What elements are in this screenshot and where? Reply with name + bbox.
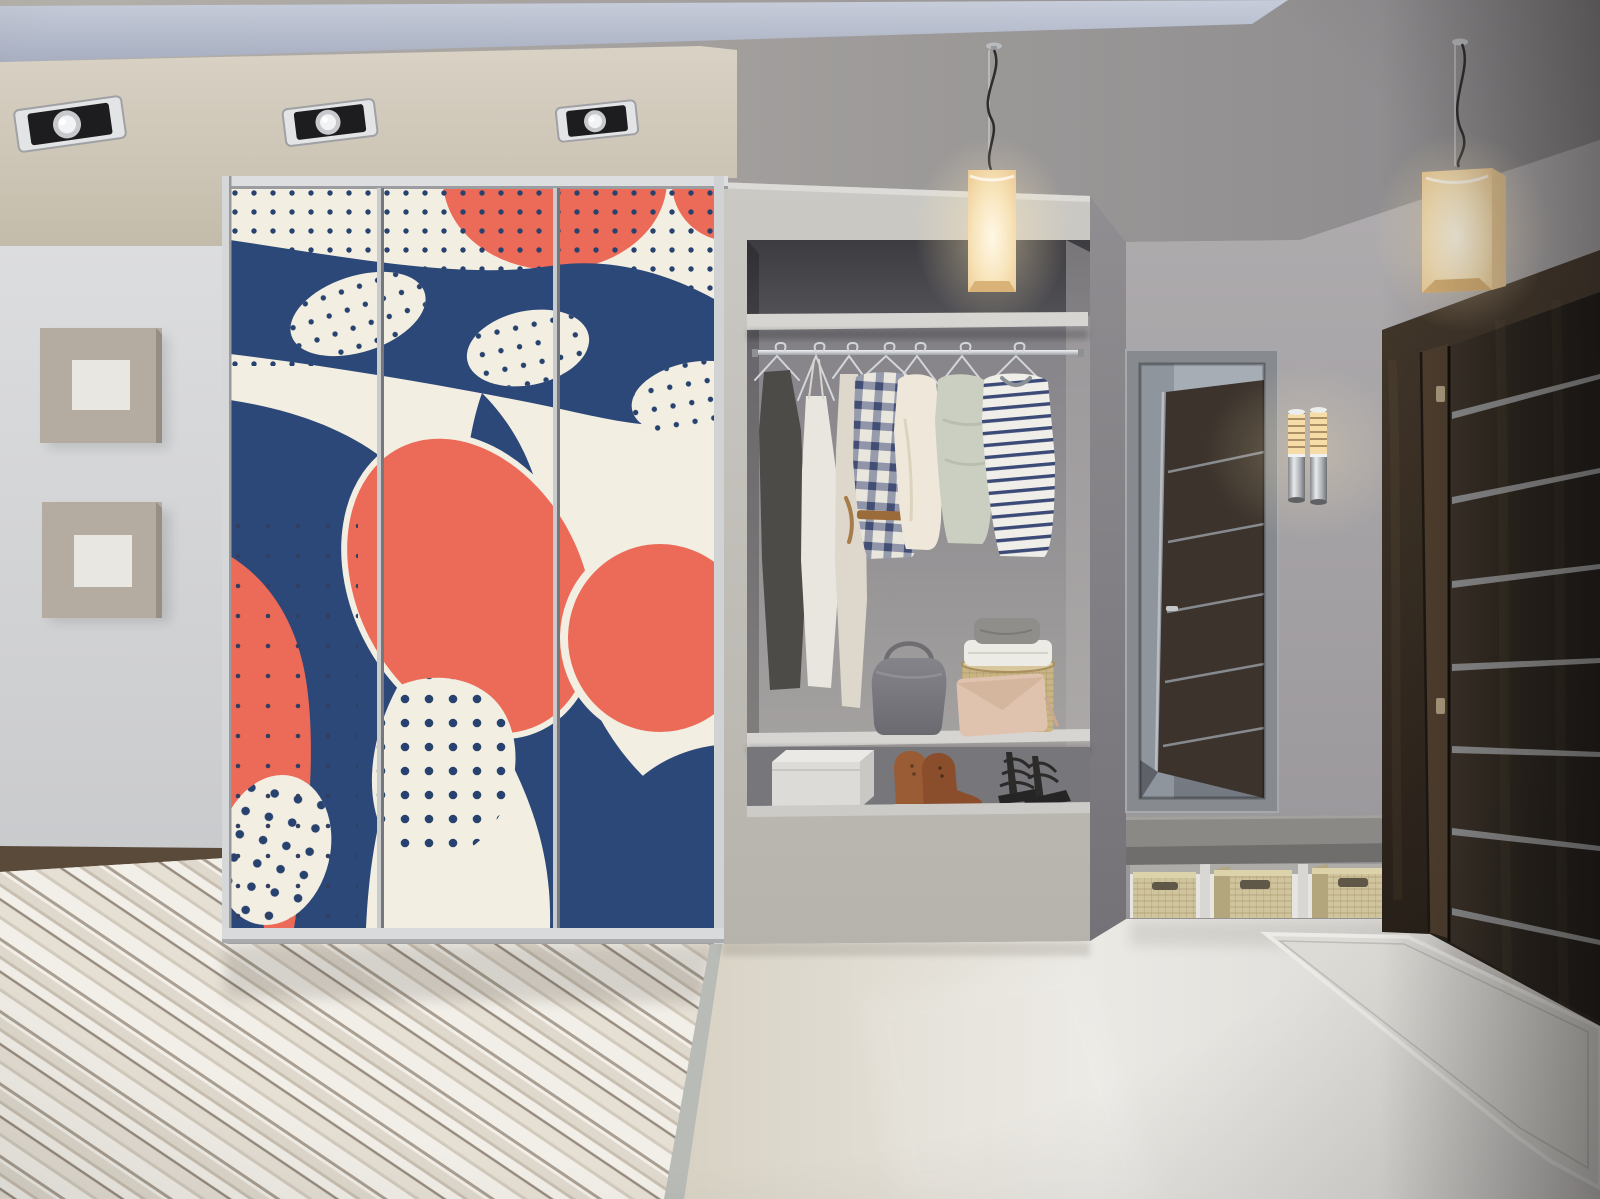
scene-canvas bbox=[0, 0, 1600, 1199]
hallway-render bbox=[0, 0, 1600, 1199]
vignette bbox=[0, 0, 1600, 1199]
